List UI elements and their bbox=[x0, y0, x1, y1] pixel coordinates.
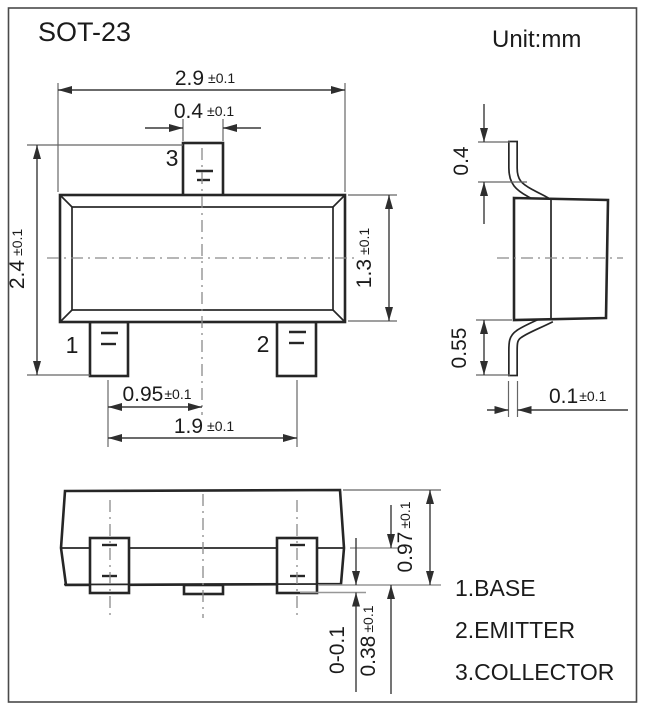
pin1-number: 1 bbox=[66, 332, 79, 358]
legend-item-base: 1.BASE bbox=[455, 575, 536, 601]
front-view: 3 1 2 2.9±0.1 0.4±0.1 2.4±0.1 1.3±0.1 0.… bbox=[6, 67, 397, 447]
bottom-lead-face bbox=[513, 318, 551, 376]
dim-pin-span: 1.9±0.1 bbox=[174, 415, 235, 438]
dim-lead-thickness: 0.1±0.1 bbox=[549, 385, 607, 408]
dim-lead-length: 0.97±0.1 bbox=[394, 501, 417, 572]
side-view: 0.4 0.55 0.1±0.1 bbox=[448, 104, 628, 417]
page-title: SOT-23 bbox=[38, 17, 131, 47]
dim-overall-height: 2.4±0.1 bbox=[6, 229, 29, 290]
dim-pin-pitch: 0.95±0.1 bbox=[122, 383, 191, 406]
dim-tab-width: 0.4±0.1 bbox=[174, 100, 235, 123]
pin3-number: 3 bbox=[166, 145, 179, 171]
dim-body-width: 2.9±0.1 bbox=[175, 67, 236, 90]
pin2-number: 2 bbox=[257, 331, 270, 357]
pin1-lead bbox=[90, 322, 128, 376]
legend-item-collector: 3.COLLECTOR bbox=[455, 659, 614, 685]
sot23-package-drawing: SOT-23 Unit:mm 3 1 2 2.9±0.1 bbox=[0, 0, 645, 715]
dim-body-height: 1.3±0.1 bbox=[353, 228, 376, 289]
side-body-outline bbox=[514, 198, 608, 320]
dim-lead-top-height: 0.4 bbox=[450, 146, 473, 176]
dim-lead-width: 0.38±0.1 bbox=[357, 605, 380, 676]
pin2-lead bbox=[277, 322, 316, 376]
bottom-view: 0.97±0.1 0.38±0.1 0-0.1 bbox=[61, 490, 441, 694]
dim-standoff: 0-0.1 bbox=[326, 626, 349, 674]
datasheet-page: SOT-23 Unit:mm 3 1 2 2.9±0.1 bbox=[0, 0, 645, 715]
pin3-tab bbox=[183, 143, 223, 196]
legend-item-emitter: 2.EMITTER bbox=[455, 617, 575, 643]
unit-label: Unit:mm bbox=[492, 26, 581, 53]
dim-lead-bottom-height: 0.55 bbox=[448, 328, 471, 369]
pin-legend: 1.BASE 2.EMITTER 3.COLLECTOR bbox=[455, 575, 614, 685]
